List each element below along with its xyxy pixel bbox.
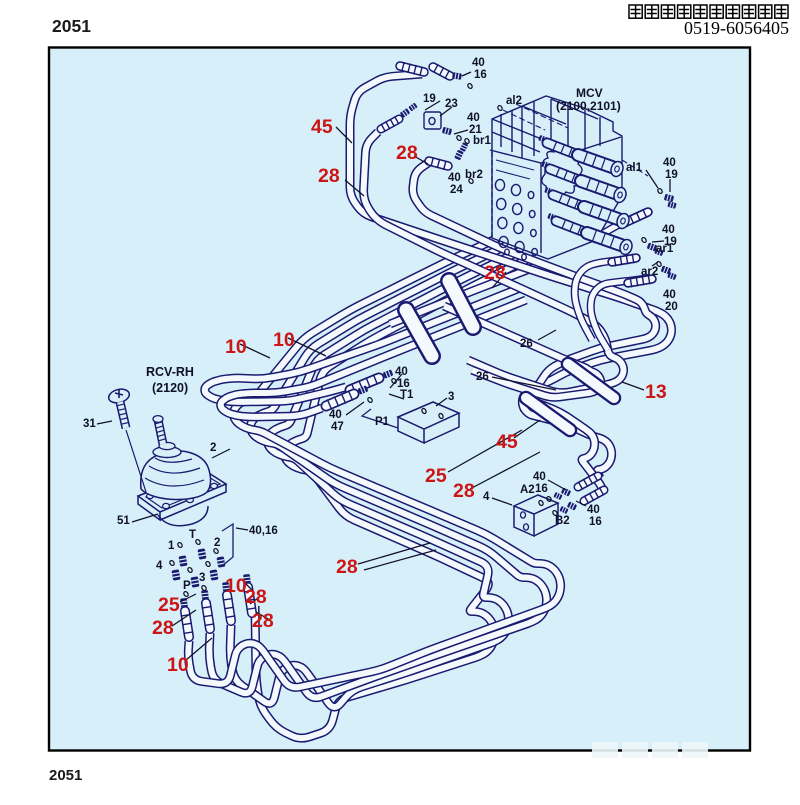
svg-text:40: 40 [587, 504, 600, 516]
svg-text:26: 26 [476, 371, 489, 383]
svg-text:45: 45 [496, 431, 518, 453]
svg-text:1: 1 [168, 540, 175, 552]
svg-text:45: 45 [311, 116, 333, 138]
svg-text:T1: T1 [400, 389, 414, 401]
svg-text:10: 10 [167, 654, 189, 676]
svg-text:16: 16 [474, 69, 487, 81]
svg-text:28: 28 [336, 556, 358, 578]
svg-text:26: 26 [520, 338, 533, 350]
svg-text:al1: al1 [626, 162, 643, 174]
svg-text:40: 40 [472, 57, 485, 69]
svg-text:2051: 2051 [52, 16, 91, 36]
svg-text:40: 40 [467, 112, 480, 124]
svg-text:2051: 2051 [49, 767, 82, 784]
svg-text:br1: br1 [473, 135, 492, 147]
svg-text:2: 2 [210, 442, 216, 454]
svg-text:RCV-RH: RCV-RH [146, 365, 194, 379]
svg-text:4: 4 [483, 491, 490, 503]
svg-text:(2100,2101): (2100,2101) [556, 99, 621, 113]
svg-text:40,16: 40,16 [249, 525, 278, 537]
svg-text:al2: al2 [506, 95, 522, 107]
svg-text:40: 40 [329, 409, 342, 421]
svg-text:28: 28 [396, 142, 418, 164]
svg-text:40: 40 [533, 471, 546, 483]
svg-text:4: 4 [156, 560, 163, 572]
svg-text:40: 40 [448, 172, 461, 184]
svg-text:0519-6056405: 0519-6056405 [684, 18, 789, 38]
svg-text:28: 28 [453, 480, 475, 502]
svg-text:10: 10 [273, 329, 295, 351]
svg-text:16: 16 [535, 483, 548, 495]
svg-text:T: T [189, 529, 196, 541]
svg-text:(2120): (2120) [152, 381, 188, 395]
svg-text:31: 31 [83, 418, 96, 430]
svg-text:P1: P1 [375, 416, 390, 428]
svg-text:16: 16 [589, 516, 602, 528]
svg-text:10: 10 [225, 575, 247, 597]
svg-text:20: 20 [665, 301, 678, 313]
svg-text:40: 40 [663, 157, 676, 169]
svg-text:28: 28 [152, 617, 174, 639]
svg-text:47: 47 [331, 421, 344, 433]
svg-text:40: 40 [395, 366, 408, 378]
svg-text:19: 19 [423, 93, 436, 105]
svg-text:MCV: MCV [576, 86, 603, 100]
svg-text:28: 28 [245, 586, 267, 608]
svg-text:2: 2 [214, 537, 220, 549]
svg-text:40: 40 [663, 289, 676, 301]
svg-text:25: 25 [158, 594, 180, 616]
svg-text:3: 3 [448, 391, 454, 403]
svg-text:P: P [183, 580, 191, 592]
svg-text:19: 19 [665, 169, 678, 181]
svg-text:24: 24 [450, 184, 463, 196]
svg-text:51: 51 [117, 515, 130, 527]
svg-text:25: 25 [425, 465, 447, 487]
svg-text:10: 10 [225, 336, 247, 358]
svg-text:ar1: ar1 [656, 243, 674, 255]
svg-text:B2: B2 [555, 515, 570, 527]
svg-text:13: 13 [645, 381, 667, 403]
svg-text:ar2: ar2 [641, 266, 658, 278]
svg-text:28: 28 [484, 262, 506, 284]
svg-text:A2: A2 [520, 484, 535, 496]
svg-text:28: 28 [318, 165, 340, 187]
svg-text:br2: br2 [465, 169, 483, 181]
svg-text:40: 40 [662, 224, 675, 236]
svg-text:23: 23 [445, 98, 458, 110]
svg-text:28: 28 [252, 610, 274, 632]
svg-text:3: 3 [199, 572, 205, 584]
